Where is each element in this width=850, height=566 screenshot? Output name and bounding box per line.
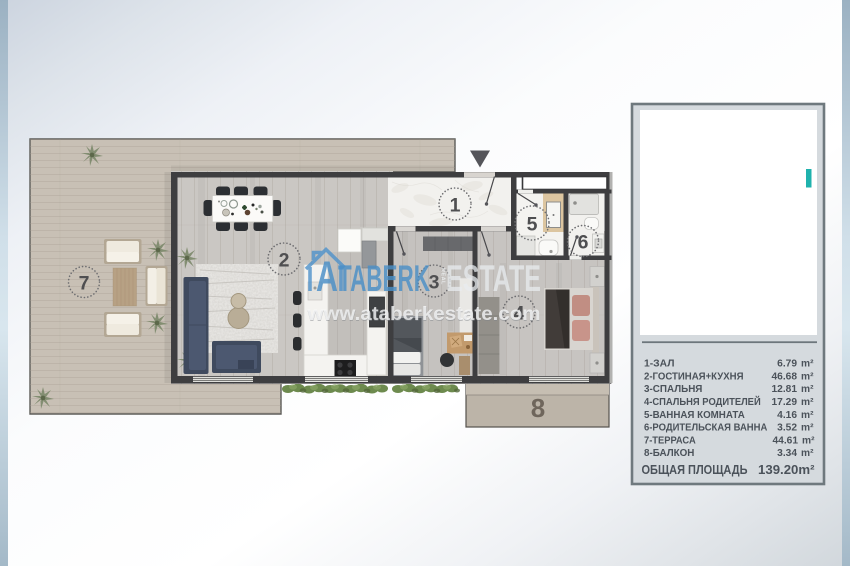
svg-text:44.61: 44.61 (773, 435, 799, 446)
svg-text:5-ВАННАЯ КОМНАТА: 5-ВАННАЯ КОМНАТА (644, 410, 745, 421)
svg-text:m²: m² (801, 448, 814, 459)
svg-text:3-СПАЛЬНЯ: 3-СПАЛЬНЯ (644, 384, 702, 395)
svg-text:m²: m² (801, 397, 814, 408)
svg-text:46.68: 46.68 (772, 371, 798, 382)
svg-text:6.79: 6.79 (777, 359, 797, 370)
svg-text:2: 2 (279, 250, 290, 272)
svg-text:12.81: 12.81 (772, 384, 798, 395)
svg-text:REAL: REAL (440, 268, 446, 285)
svg-text:2-ГОСТИНАЯ+КУХНЯ: 2-ГОСТИНАЯ+КУХНЯ (644, 371, 744, 382)
svg-text:8-БАЛКОН: 8-БАЛКОН (644, 448, 694, 459)
svg-text:1: 1 (450, 195, 461, 217)
svg-text:m²: m² (801, 423, 814, 434)
svg-text:m²: m² (802, 435, 815, 446)
svg-text:ESTATE: ESTATE (446, 258, 541, 299)
svg-text:6-РОДИТЕЛЬСКАЯ ВАННА: 6-РОДИТЕЛЬСКАЯ ВАННА (644, 423, 768, 434)
svg-text:3.34: 3.34 (777, 448, 797, 459)
svg-text:139.20m²: 139.20m² (758, 462, 815, 477)
svg-text:1-ЗАЛ: 1-ЗАЛ (644, 359, 675, 370)
svg-text:m²: m² (801, 384, 814, 395)
svg-text:www.ataberkestate.com: www.ataberkestate.com (306, 304, 540, 325)
svg-text:5: 5 (527, 214, 538, 236)
svg-text:3.52: 3.52 (777, 423, 797, 434)
svg-text:7-ТЕРРАСА: 7-ТЕРРАСА (644, 435, 696, 446)
svg-text:ОБЩАЯ ПЛОЩАДЬ: ОБЩАЯ ПЛОЩАДЬ (642, 462, 748, 477)
svg-text:17.29: 17.29 (772, 397, 798, 408)
svg-text:TABERK: TABERK (338, 258, 430, 299)
svg-text:m²: m² (801, 359, 814, 370)
svg-text:4-СПАЛЬНЯ РОДИТЕЛЕЙ: 4-СПАЛЬНЯ РОДИТЕЛЕЙ (644, 395, 761, 408)
svg-text:4.16: 4.16 (777, 410, 797, 421)
svg-text:m²: m² (801, 371, 814, 382)
svg-text:8: 8 (531, 393, 545, 423)
svg-text:6: 6 (578, 232, 589, 254)
svg-text:A: A (316, 253, 338, 301)
svg-text:7: 7 (79, 273, 90, 295)
svg-text:m²: m² (801, 410, 814, 421)
svg-text:3: 3 (429, 272, 440, 294)
